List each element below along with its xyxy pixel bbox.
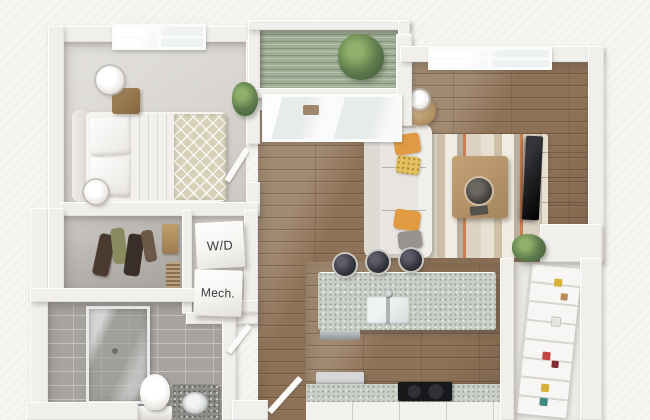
pantry-item bbox=[542, 352, 551, 361]
coffee-table-tray bbox=[466, 178, 492, 204]
potted-plant bbox=[232, 82, 258, 116]
kitchen-faucet bbox=[384, 289, 392, 297]
pillow-gray bbox=[397, 230, 423, 250]
patio-table bbox=[303, 105, 319, 115]
washer-dryer-label: W/D bbox=[207, 237, 234, 253]
kitchen-sink bbox=[366, 296, 410, 324]
pantry-item bbox=[554, 278, 563, 287]
bed-pillow bbox=[89, 116, 133, 156]
floorplan-canvas: W/D Mech. bbox=[0, 0, 650, 420]
dishwasher bbox=[320, 330, 360, 340]
mechanical-unit: Mech. bbox=[193, 269, 243, 317]
bedroom-window bbox=[112, 24, 206, 50]
balcony-sliding-door bbox=[262, 94, 402, 142]
cooktop bbox=[398, 382, 452, 401]
pantry-item bbox=[560, 293, 568, 301]
bed-duvet-white bbox=[130, 114, 176, 200]
balcony-plant bbox=[338, 34, 384, 80]
sliding-door-mullion bbox=[327, 97, 331, 133]
pantry-item bbox=[541, 384, 550, 393]
wall bbox=[500, 258, 514, 420]
living-room-window bbox=[428, 47, 552, 70]
wall bbox=[48, 208, 64, 296]
vanity-sink bbox=[182, 392, 208, 414]
table-lamp bbox=[84, 180, 108, 204]
wall bbox=[30, 208, 48, 420]
shower-drain bbox=[112, 348, 118, 354]
pantry-item bbox=[539, 397, 548, 406]
coffee-table-book bbox=[470, 205, 489, 216]
pantry-item bbox=[551, 316, 562, 327]
wall bbox=[580, 258, 602, 420]
table-lamp bbox=[96, 66, 124, 94]
wall bbox=[60, 202, 258, 216]
washer-dryer-unit: W/D bbox=[195, 221, 245, 269]
mechanical-label: Mech. bbox=[201, 285, 236, 300]
closet-shelf-items bbox=[162, 224, 178, 254]
accent-pillow-patterned bbox=[395, 155, 421, 176]
bed-duvet-trellis bbox=[174, 114, 226, 200]
wall bbox=[540, 224, 602, 262]
wall bbox=[232, 400, 268, 420]
accent-pillow-orange bbox=[393, 208, 422, 231]
kitchen-base-cabinets bbox=[306, 402, 504, 420]
laundry-basket bbox=[166, 262, 180, 288]
wall bbox=[48, 26, 64, 218]
wall bbox=[30, 288, 198, 302]
side-table-lamp bbox=[410, 90, 429, 109]
bar-stool bbox=[334, 254, 356, 276]
pantry-item bbox=[551, 361, 559, 369]
corner-plant bbox=[512, 234, 546, 262]
tv-console bbox=[542, 128, 586, 230]
bar-stool bbox=[367, 251, 389, 273]
bar-stool bbox=[400, 249, 422, 271]
wall bbox=[248, 20, 410, 30]
wall bbox=[26, 402, 138, 420]
toilet-bowl bbox=[140, 374, 170, 410]
